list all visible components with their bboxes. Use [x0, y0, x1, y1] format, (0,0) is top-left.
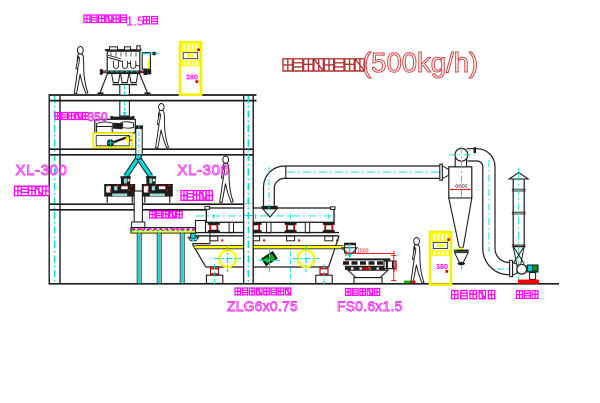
svg-text:XL-300: XL-300 [178, 162, 230, 179]
svg-text:1500: 1500 [357, 249, 369, 255]
svg-text:350: 350 [88, 110, 108, 124]
svg-text:380: 380 [186, 72, 198, 81]
svg-text:FS0.6x1.5: FS0.6x1.5 [337, 299, 403, 314]
svg-text:XL-300: XL-300 [16, 162, 68, 179]
svg-text:(500kg/h): (500kg/h) [362, 47, 478, 78]
svg-text:380: 380 [436, 262, 448, 271]
svg-text:540: 540 [393, 263, 399, 272]
svg-text:1.5: 1.5 [126, 14, 144, 29]
svg-text:ZLG6x0.75: ZLG6x0.75 [227, 299, 298, 314]
